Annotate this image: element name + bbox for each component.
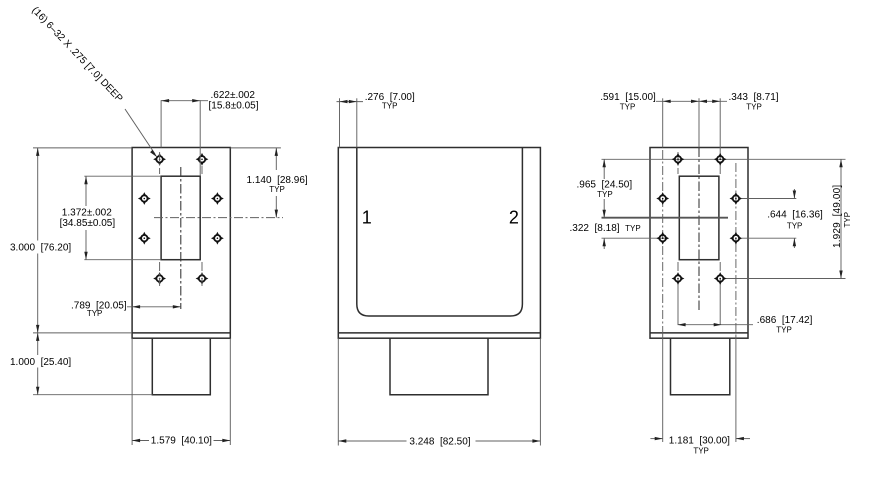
svg-text:TYP: TYP: [269, 185, 285, 194]
svg-text:TYP: TYP: [787, 222, 803, 231]
svg-text:TYP: TYP: [843, 212, 852, 228]
svg-text:TYP: TYP: [746, 103, 762, 112]
svg-text:1.929 [49.00]: 1.929 [49.00]: [832, 185, 843, 248]
svg-text:1.579 [40.10]: 1.579 [40.10]: [151, 436, 212, 447]
svg-text:1.000 [25.40]: 1.000 [25.40]: [10, 357, 71, 368]
svg-text:3.248 [82.50]: 3.248 [82.50]: [409, 436, 470, 447]
svg-text:TYP: TYP: [693, 446, 709, 455]
svg-text:TYP: TYP: [382, 102, 398, 111]
svg-text:TYP: TYP: [597, 190, 613, 199]
svg-text:[34.85±0.05]: [34.85±0.05]: [60, 218, 116, 229]
svg-text:2: 2: [509, 208, 519, 228]
svg-text:.644 [16.36]: .644 [16.36]: [767, 209, 823, 220]
svg-text:.322 [8.18] TYP: .322 [8.18] TYP: [570, 223, 641, 234]
svg-text:.343 [8.71]: .343 [8.71]: [729, 92, 779, 103]
svg-text:TYP: TYP: [87, 309, 103, 318]
svg-text:.686 [17.42]: .686 [17.42]: [757, 315, 813, 326]
svg-text:TYP: TYP: [776, 326, 792, 335]
svg-text:1: 1: [362, 208, 372, 228]
svg-text:.591 [15.00]: .591 [15.00]: [600, 92, 656, 103]
svg-text:TYP: TYP: [620, 103, 636, 112]
svg-text:[15.8±0.05]: [15.8±0.05]: [209, 100, 259, 111]
svg-text:3.000 [76.20]: 3.000 [76.20]: [10, 242, 71, 253]
svg-text:1.181 [30.00]: 1.181 [30.00]: [669, 435, 730, 446]
